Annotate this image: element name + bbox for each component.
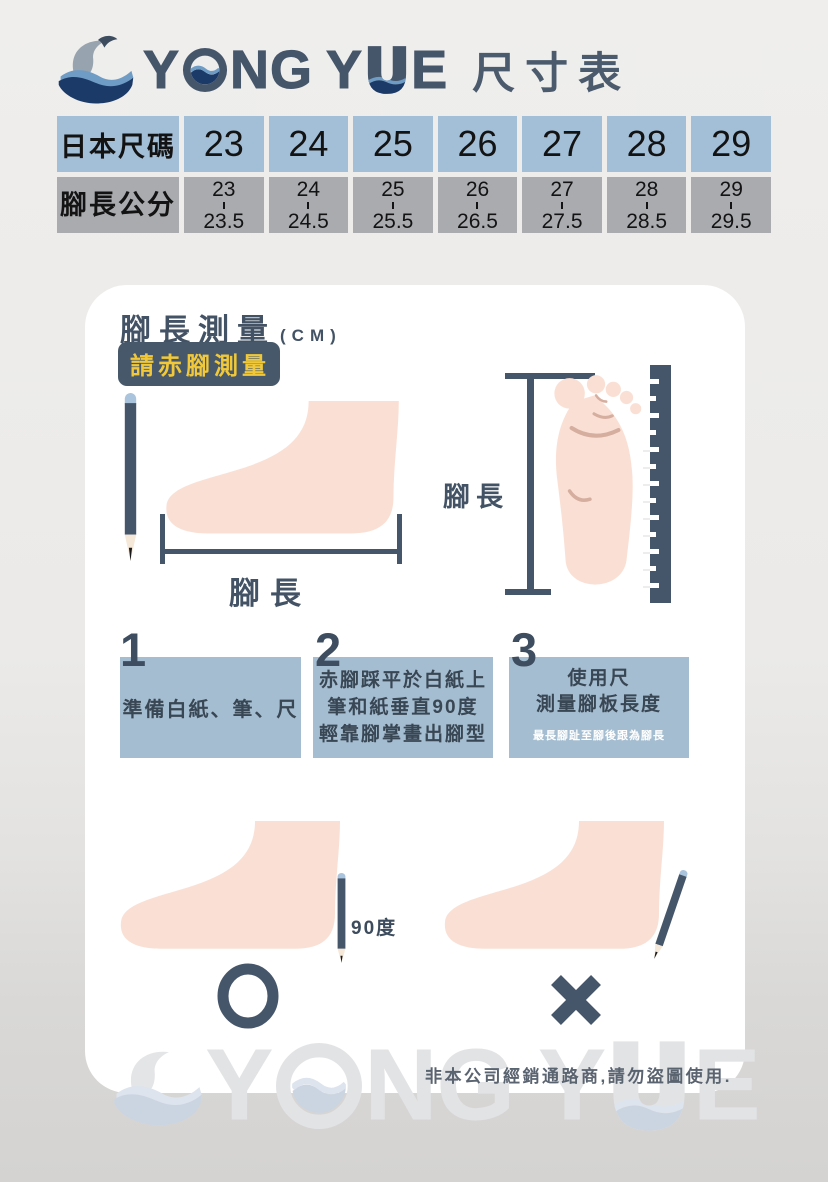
disclaimer-text: 非本公司經銷通路商,請勿盜圖使用. bbox=[425, 1062, 732, 1087]
jp-size-row-label: 日本尺碼 bbox=[57, 116, 179, 172]
letter-u-wave-icon bbox=[365, 46, 409, 94]
foot-side-illustration bbox=[113, 821, 343, 957]
foot-length-row-label: 腳長公分 bbox=[57, 177, 179, 233]
range-dash bbox=[223, 202, 225, 209]
range-dash bbox=[307, 202, 309, 209]
brand-logo-whale-wave-icon bbox=[55, 34, 137, 106]
range-cell: 2929.5 bbox=[691, 177, 771, 233]
range-to: 29.5 bbox=[711, 211, 752, 232]
range-to: 25.5 bbox=[372, 211, 413, 232]
range-from: 28 bbox=[635, 179, 658, 200]
range-dash bbox=[730, 202, 732, 209]
size-cell: 25 bbox=[353, 116, 433, 172]
range-cell: 2626.5 bbox=[438, 177, 518, 233]
angle-label: 90度 bbox=[351, 913, 397, 940]
barefoot-badge: 請赤腳測量 bbox=[118, 342, 280, 386]
range-from: 24 bbox=[297, 179, 320, 200]
foot-length-label: 腳長 bbox=[170, 568, 370, 613]
ruler-icon bbox=[643, 365, 671, 603]
brand-letters: NG bbox=[230, 43, 313, 97]
size-table: 日本尺碼 23 24 25 26 27 28 29 腳長公分 2323.5 24… bbox=[57, 116, 771, 233]
range-dash bbox=[646, 202, 648, 209]
range-from: 27 bbox=[550, 179, 573, 200]
range-dash bbox=[392, 202, 394, 209]
range-dash bbox=[561, 202, 563, 209]
size-cell: 28 bbox=[607, 116, 687, 172]
correct-mark-icon bbox=[217, 963, 279, 1029]
range-to: 24.5 bbox=[288, 211, 329, 232]
step-text: 準備白紙、筆、尺 bbox=[123, 693, 299, 722]
step-number: 3 bbox=[511, 626, 537, 673]
range-cell: 2727.5 bbox=[522, 177, 602, 233]
range-from: 25 bbox=[381, 179, 404, 200]
step-number: 2 bbox=[315, 626, 341, 673]
step-note: 最長腳趾至腳後跟為腳長 bbox=[533, 723, 665, 749]
size-chart-title: 尺寸表 bbox=[472, 39, 631, 101]
brand-letter: Y bbox=[143, 43, 180, 97]
range-from: 23 bbox=[212, 179, 235, 200]
brand-letter: Y bbox=[326, 43, 363, 97]
letter-o-wave-icon bbox=[182, 47, 228, 93]
measurement-card: 腳長測量 (CM) 請赤腳測量 腳長 腳長 bbox=[85, 285, 745, 1093]
range-to: 28.5 bbox=[626, 211, 667, 232]
foot-length-label-side: 腳長 bbox=[443, 475, 509, 514]
card-heading-unit: (CM) bbox=[280, 326, 342, 346]
foot-side-illustration bbox=[437, 821, 667, 957]
range-dash bbox=[476, 202, 478, 209]
range-cell: 2323.5 bbox=[184, 177, 264, 233]
range-to: 23.5 bbox=[203, 211, 244, 232]
step-text: 輕靠腳掌畫出腳型 bbox=[319, 721, 487, 748]
range-to: 26.5 bbox=[457, 211, 498, 232]
size-cell: 29 bbox=[691, 116, 771, 172]
step-text: 赤腳踩平於白紙上 bbox=[319, 667, 487, 694]
brand-wordmark: Y NG Y E bbox=[143, 43, 448, 97]
step-box-1: 準備白紙、筆、尺 bbox=[120, 657, 301, 758]
size-cell: 27 bbox=[522, 116, 602, 172]
range-cell: 2828.5 bbox=[607, 177, 687, 233]
range-cell: 2424.5 bbox=[269, 177, 349, 233]
pencil-icon bbox=[121, 393, 140, 565]
step-number: 1 bbox=[120, 626, 146, 673]
step-text: 使用尺 bbox=[567, 666, 630, 692]
step-text: 測量腳板長度 bbox=[536, 692, 662, 718]
size-cell: 24 bbox=[269, 116, 349, 172]
header: Y NG Y E 尺寸表 bbox=[55, 34, 631, 106]
range-from: 26 bbox=[466, 179, 489, 200]
horizontal-measure-line bbox=[160, 513, 402, 565]
foot-sole-illustration bbox=[533, 371, 655, 607]
brand-letter: E bbox=[411, 43, 448, 97]
wrong-mark-icon bbox=[547, 971, 605, 1029]
size-cell: 23 bbox=[184, 116, 264, 172]
step-text: 筆和紙垂直90度 bbox=[327, 694, 478, 721]
pencil-vertical-icon bbox=[335, 873, 348, 965]
range-to: 27.5 bbox=[542, 211, 583, 232]
range-cell: 2525.5 bbox=[353, 177, 433, 233]
size-chart-page: Y NG Y E 尺寸表 bbox=[0, 0, 828, 1182]
size-cell: 26 bbox=[438, 116, 518, 172]
range-from: 29 bbox=[720, 179, 743, 200]
